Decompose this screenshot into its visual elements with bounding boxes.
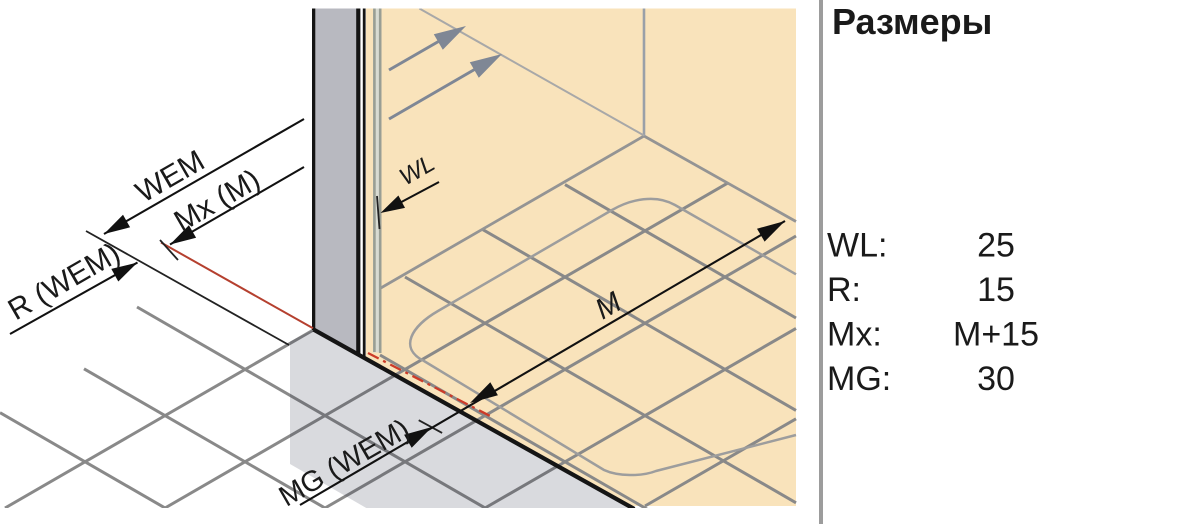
svg-text:WL:: WL: bbox=[827, 227, 887, 265]
svg-text:25: 25 bbox=[977, 227, 1015, 265]
svg-text:Mx:: Mx: bbox=[827, 316, 882, 354]
svg-text:Размеры: Размеры bbox=[832, 1, 992, 42]
svg-text:15: 15 bbox=[977, 271, 1015, 309]
svg-text:M+15: M+15 bbox=[953, 316, 1039, 354]
svg-text:MG:: MG: bbox=[827, 360, 891, 398]
svg-text:30: 30 bbox=[977, 360, 1015, 398]
svg-text:R:: R: bbox=[827, 271, 861, 309]
